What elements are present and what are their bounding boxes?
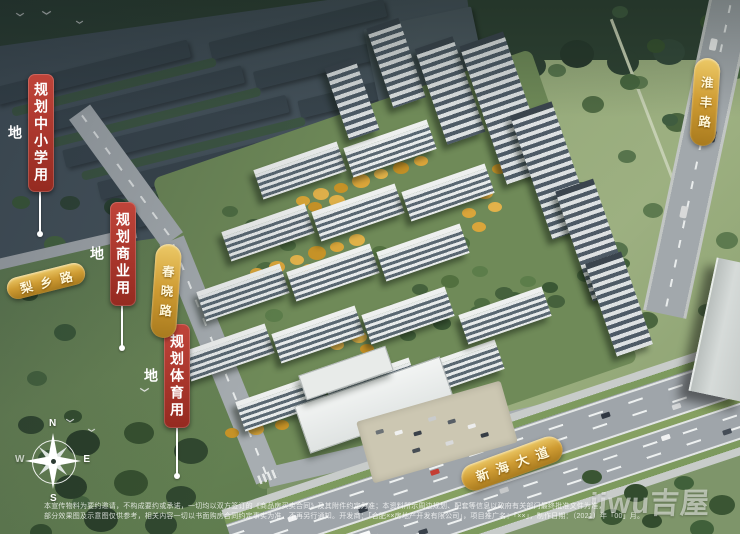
aerial-rendering: ﹀ ﹀ ﹀ ﹀ ﹀ ﹀ 规划中小学用地 规划商业用地 规划体育用地 梨乡路 春晓… <box>0 0 740 534</box>
leader-dot <box>174 473 180 479</box>
compass-west-label: W <box>15 454 24 465</box>
bird-icon: ﹀ <box>16 12 24 23</box>
bird-icon: ﹀ <box>42 9 51 22</box>
leader-line <box>121 306 123 346</box>
planning-label-sports: 规划体育用地 <box>164 324 190 428</box>
leader-line <box>176 428 178 474</box>
vehicle <box>709 38 718 51</box>
leader-dot <box>119 345 125 351</box>
planning-label-commercial: 规划商业用地 <box>110 202 136 306</box>
planning-label-school: 规划中小学用地 <box>28 74 54 192</box>
compass-rose: N E S W <box>14 420 92 502</box>
disclaimer-line-1: 本宣传物料为要约邀请，不构成要约或承诺，一切均以双方签订的《商品房买卖合同》及其… <box>44 502 736 512</box>
tree-cluster <box>612 6 628 18</box>
golden-tree-cluster <box>225 428 239 438</box>
tree-cluster <box>60 196 80 210</box>
leader-line <box>39 192 41 232</box>
compass-center <box>51 459 56 464</box>
tree-cluster <box>222 206 238 217</box>
bird-icon: ﹀ <box>76 20 83 30</box>
disclaimer-line-2: 部分效果图及示意图仅供参考，相关内容一切以书面购房合同约定事实为准，不再另行通知… <box>44 512 736 522</box>
leader-dot <box>37 231 43 237</box>
tree-cluster <box>12 196 30 209</box>
disclaimer-text: 本宣传物料为要约邀请，不构成要约或承诺，一切均以双方签订的《商品房买卖合同》及其… <box>44 502 736 521</box>
compass-east-label: E <box>83 454 90 465</box>
bird-icon: ﹀ <box>140 386 149 399</box>
vehicle <box>375 429 384 435</box>
golden-tree-cluster <box>462 208 476 218</box>
tree-cluster <box>548 64 566 77</box>
compass-north-label: N <box>49 418 56 429</box>
